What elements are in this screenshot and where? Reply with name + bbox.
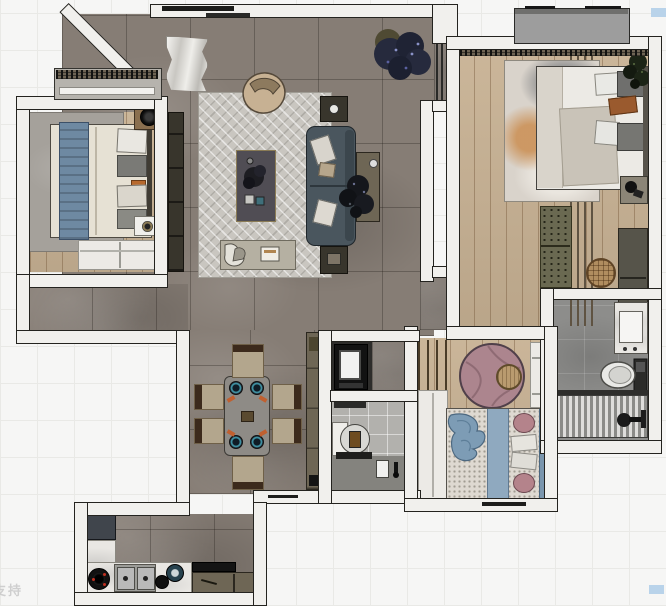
chair-bottom-back: [233, 482, 263, 489]
place-setting-2: [250, 381, 264, 395]
chair-left2-back: [195, 419, 202, 443]
side-table-top-cup: [329, 104, 339, 114]
wall-kitchen-top: [74, 502, 190, 516]
bathroom-sink: [619, 311, 643, 343]
tv-media-unit[interactable]: [168, 112, 184, 272]
chair-left1-back: [195, 385, 202, 409]
wall-living-right: [420, 100, 434, 282]
storage-cabinet[interactable]: [334, 344, 368, 390]
kids-bed[interactable]: [446, 408, 546, 500]
bay-window-planter: [54, 68, 162, 100]
console-plant[interactable]: [334, 168, 378, 220]
kids-closet-divider: [432, 393, 434, 497]
ui-artifact-top-right: [651, 8, 666, 17]
sideboard-decor-dark: [309, 475, 318, 486]
dining-table[interactable]: [224, 376, 270, 456]
bathroom-vanity[interactable]: [614, 302, 648, 354]
wall-bedroom-left-right: [154, 96, 168, 288]
master-pillow-white-1: [594, 72, 619, 96]
floor-storage-right: [372, 340, 408, 392]
planter-sill: [59, 87, 155, 95]
wall-bedroom-left-left: [16, 96, 30, 288]
master-pillow-dark-2: [617, 123, 645, 151]
cooktop-bar[interactable]: [192, 562, 236, 572]
side-table-bottom-tray: [327, 253, 341, 265]
kids-pillow-white-1: [510, 434, 537, 452]
wall-kitchen-right: [253, 502, 267, 606]
kids-pillow-pink-1: [513, 413, 535, 433]
floor-living-extension: [28, 284, 188, 336]
bathroom-soap-dot: [633, 347, 637, 351]
chair-right1-back: [294, 385, 301, 409]
napkin-orange-3: [227, 429, 236, 436]
master-nightstand[interactable]: [620, 176, 648, 204]
kids-bed-blanket: [447, 409, 493, 479]
table-centerpiece: [241, 411, 254, 422]
kids-pillow-pink-2: [513, 473, 535, 493]
coffee-table[interactable]: [236, 150, 276, 222]
place-setting-1: [229, 381, 243, 395]
napkin-orange-2: [259, 395, 268, 402]
bedroom-left-dresser[interactable]: [78, 240, 162, 270]
living-window-bar-1: [162, 6, 234, 11]
dining-chair-top[interactable]: [232, 344, 264, 378]
wall-master-right: [648, 36, 662, 454]
living-window-bar-2: [206, 13, 250, 17]
chair-right2-back: [294, 419, 301, 443]
side-table-top[interactable]: [320, 96, 348, 122]
bed-left-pillow-3: [117, 184, 148, 207]
dining-chair-left-1[interactable]: [194, 384, 224, 410]
gas-burner[interactable]: [88, 568, 110, 590]
kitchen-cabinets-right[interactable]: [192, 572, 254, 594]
place-setting-4: [250, 435, 264, 449]
balcony-mark-2: [585, 6, 621, 9]
bath2-round-basin[interactable]: [340, 424, 370, 454]
toilet[interactable]: [598, 356, 650, 394]
chair-top-back: [233, 345, 263, 352]
wall-kids-bottom: [404, 498, 558, 512]
window-curtain: [166, 36, 208, 92]
runner-divider: [541, 245, 570, 247]
bed-left-fold-line: [95, 127, 97, 235]
bathroom-faucet-dot: [623, 347, 627, 351]
wall-storage-top: [320, 330, 420, 342]
door-track-lines-2: [441, 44, 443, 102]
fridge[interactable]: [86, 512, 116, 540]
bath2-basin-item: [349, 431, 361, 448]
master-balcony-box: [514, 8, 630, 44]
dining-chair-left-2[interactable]: [194, 418, 224, 444]
balcony-top-edge: [515, 9, 628, 14]
kids-bottom-door-mark: [482, 502, 526, 506]
bath2-shower-box[interactable]: [376, 460, 389, 478]
wall-dining-left: [176, 330, 190, 506]
sideboard-decor-speckle: [309, 337, 318, 351]
wall-kids-right: [544, 326, 558, 512]
wall-dining-right: [318, 330, 332, 504]
wall-bathroom-bottom: [540, 440, 662, 454]
storage-cabinet-panel: [339, 350, 361, 380]
pot-on-counter[interactable]: [166, 564, 184, 582]
dining-chair-bottom[interactable]: [232, 456, 264, 490]
kids-pouf[interactable]: [496, 364, 522, 390]
wall-kitchen-left: [74, 502, 88, 606]
bed-left-blue-throw: [59, 122, 89, 240]
bath2-shelf-bar: [336, 452, 372, 459]
planter-plants-strip: [56, 70, 158, 79]
watermark-text: 支持: [0, 580, 23, 599]
cabinet-divider: [233, 574, 235, 592]
ui-artifact-bottom-right: [649, 585, 664, 594]
bath2-top-bar: [334, 402, 366, 408]
dresser-divider: [119, 242, 121, 268]
floorplan-canvas: 支持: [0, 0, 666, 606]
wall-kids-left: [404, 326, 418, 512]
place-setting-3: [229, 435, 243, 449]
wall-bedroom-left-bottom: [16, 274, 168, 288]
kids-closet[interactable]: [418, 390, 448, 500]
kids-pillow-white-2: [510, 452, 538, 471]
round-basket[interactable]: [586, 258, 616, 288]
wall-kitchen-bottom: [74, 592, 267, 606]
dining-chair-right-2[interactable]: [272, 418, 302, 444]
wall-bathroom-top: [540, 288, 662, 300]
bath2-shower-hose: [390, 462, 402, 478]
master-bed-blanket: [559, 106, 619, 187]
wall-living-ext-bottom: [16, 330, 190, 344]
armchair[interactable]: [240, 70, 288, 116]
large-floor-plant[interactable]: [360, 24, 442, 88]
runner-rug-green[interactable]: [540, 206, 572, 288]
entry-door-line[interactable]: [268, 495, 298, 498]
burner-red-dot-1: [92, 578, 95, 581]
sofa-pillow-top: [309, 135, 336, 166]
master-pillow-orange: [608, 95, 638, 115]
bed-left-pillow-2: [117, 155, 147, 177]
napkin-orange-4: [259, 429, 268, 436]
dining-chair-right-1[interactable]: [272, 384, 302, 410]
bed-left-pillow-1: [116, 128, 147, 154]
bench-with-clothes[interactable]: [220, 240, 296, 270]
wall-master-left: [446, 36, 460, 328]
console-cup: [369, 159, 378, 168]
tray-dish: [142, 221, 153, 232]
dresser-top-line: [80, 250, 160, 252]
cabinet-handle: [201, 579, 217, 585]
door-track-lines: [436, 44, 438, 102]
wall-storage-bath2-divider: [330, 390, 418, 402]
balcony-mark: [525, 6, 555, 9]
sink-drain-left: [123, 576, 128, 581]
storage-cabinet-items: [339, 383, 363, 388]
shower-fixture[interactable]: [614, 406, 648, 432]
burner-red-dot-2: [103, 573, 106, 576]
double-sink[interactable]: [114, 564, 156, 592]
side-table-bottom[interactable]: [320, 246, 348, 274]
sink-drain-right: [143, 576, 148, 581]
napkin-orange-1: [227, 395, 236, 402]
master-wardrobe-divider: [620, 277, 646, 279]
wall-kids-top: [446, 326, 556, 340]
burner-red-dot-3: [103, 583, 106, 586]
